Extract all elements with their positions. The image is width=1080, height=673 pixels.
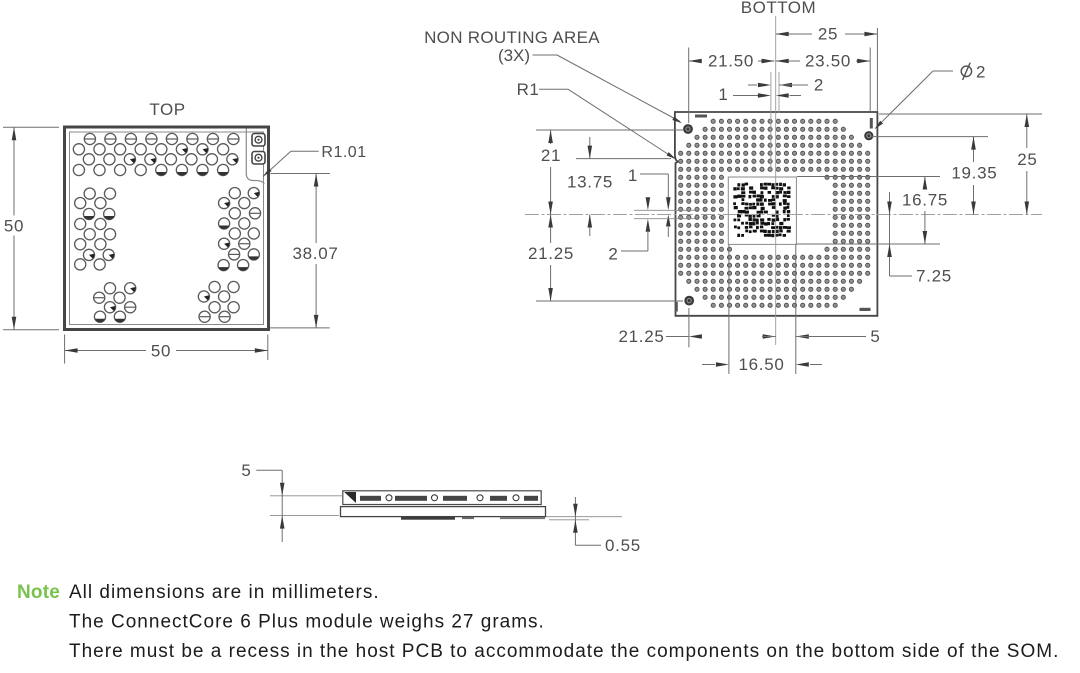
svg-text:1: 1 — [628, 166, 638, 185]
svg-text:R1.01: R1.01 — [321, 144, 366, 161]
svg-text:TOP: TOP — [149, 100, 185, 119]
svg-text:2: 2 — [814, 76, 824, 95]
svg-text:50: 50 — [4, 217, 24, 236]
svg-text:There must be a recess in the: There must be a recess in the host PCB t… — [69, 641, 1059, 662]
svg-text:BOTTOM: BOTTOM — [741, 0, 816, 17]
svg-text:(3X): (3X) — [498, 46, 530, 65]
svg-text:2: 2 — [976, 63, 985, 82]
svg-text:25: 25 — [1017, 150, 1037, 169]
svg-text:21: 21 — [541, 146, 561, 165]
svg-text:13.75: 13.75 — [567, 172, 613, 191]
svg-text:1: 1 — [718, 85, 728, 104]
svg-text:7.25: 7.25 — [916, 267, 952, 286]
svg-text:16.75: 16.75 — [902, 191, 948, 210]
svg-text:NON ROUTING AREA: NON ROUTING AREA — [424, 28, 600, 47]
svg-text:21.25: 21.25 — [618, 327, 664, 346]
svg-text:50: 50 — [151, 342, 171, 361]
svg-text:2: 2 — [608, 245, 618, 264]
svg-text:Note: Note — [17, 582, 60, 603]
svg-text:5: 5 — [870, 327, 880, 346]
svg-text:38.07: 38.07 — [292, 244, 338, 263]
svg-text:5: 5 — [241, 461, 251, 480]
svg-text:0.55: 0.55 — [605, 536, 641, 555]
svg-text:19.35: 19.35 — [951, 164, 997, 183]
svg-text:21.50: 21.50 — [708, 52, 754, 71]
svg-text:The ConnectCore 6 Plus module: The ConnectCore 6 Plus module weighs 27 … — [69, 612, 545, 633]
svg-text:21.25: 21.25 — [528, 244, 574, 263]
svg-text:23.50: 23.50 — [805, 52, 851, 71]
svg-text:R1: R1 — [517, 80, 540, 99]
svg-text:25: 25 — [818, 25, 838, 44]
svg-text:All dimensions are in millimet: All dimensions are in millimeters. — [69, 582, 380, 603]
svg-text:16.50: 16.50 — [738, 355, 784, 374]
